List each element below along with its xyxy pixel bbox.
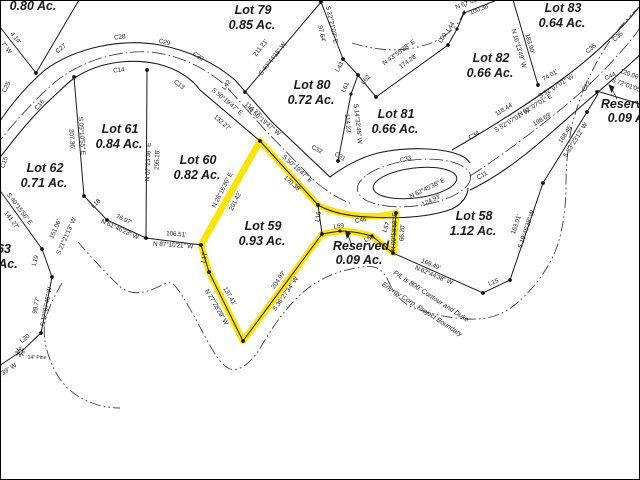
- reserved-right-name: Reserved: [601, 97, 640, 111]
- curve-ref-c36: C36: [611, 30, 625, 43]
- curve-ref-c33: C33: [399, 155, 412, 165]
- curve-ref-c46: C46: [354, 216, 367, 225]
- labels-layer: 0.80 Ac.Lot 790.85 Ac.Lot 800.72 Ac.Lot …: [0, 0, 640, 379]
- line-ref-l42: L42: [221, 78, 233, 91]
- distance: 74.01': [541, 68, 559, 83]
- line-ref-l43: L43: [334, 60, 346, 73]
- distance: 132.27': [212, 114, 232, 132]
- line-ref-l19: L19: [31, 254, 41, 266]
- bearing: N 87°10'21" W: [153, 240, 195, 251]
- plat-map-canvas: 0.80 Ac.Lot 790.85 Ac.Lot 800.72 Ac.Lot …: [0, 0, 640, 480]
- distance: 118.44': [494, 102, 514, 118]
- curve-ref-c28: C28: [114, 33, 127, 42]
- distance-partial: 4.14': [8, 31, 22, 46]
- lot-62-name: Lot 62: [27, 161, 64, 175]
- distance: 141.27': [2, 210, 20, 230]
- distance: 183.90': [523, 33, 535, 54]
- distance: 151.06': [48, 219, 63, 240]
- bearing: N 07°23'38" E: [143, 143, 152, 182]
- lot-83-acreage: 0.64 Ac.: [539, 16, 586, 30]
- line-ref-l61: L61: [340, 81, 351, 94]
- lot-58-name: Lot 58: [456, 209, 493, 223]
- distance: 198.69': [532, 112, 553, 128]
- survey-vertex-dots: [34, 0, 599, 343]
- plat-map: 0.80 Ac.Lot 790.85 Ac.Lot 800.72 Ac.Lot …: [0, 0, 640, 480]
- distance: 295.18': [154, 150, 162, 170]
- lot-83-name: Lot 83: [545, 1, 582, 15]
- lot-79-acreage: 0.85 Ac.: [229, 18, 276, 32]
- lot-59-acreage: 0.93 Ac.: [239, 234, 286, 248]
- curve-ref-c15: C15: [0, 156, 10, 170]
- lot-81-acreage: 0.66 Ac.: [372, 122, 419, 136]
- bearing: S 12°07'45" W: [38, 285, 54, 327]
- distance: 99.77': [32, 297, 42, 315]
- bearing: S 19°45'38" W: [516, 208, 537, 249]
- curve-ref-c30: C30: [191, 51, 205, 63]
- lot-60-name: Lot 60: [180, 153, 217, 167]
- lot-58-acreage: 1.12 Ac.: [450, 224, 497, 238]
- reserved-center-name: Reserved: [333, 239, 390, 253]
- distance: 97.64': [316, 25, 326, 43]
- bearing: S 05°10'55" E: [77, 117, 88, 156]
- bearing-partial: 4'39" W: [0, 361, 19, 379]
- distance: 207.36': [67, 129, 75, 150]
- bearing: N 50°19'47" W: [246, 105, 283, 138]
- distance: 106.51': [166, 230, 187, 238]
- curve-ref-c27: C27: [54, 42, 68, 55]
- curve-ref-c31: C31: [333, 151, 347, 163]
- curve-ref-c12: C12: [581, 79, 593, 93]
- lot-61-acreage: 0.84 Ac.: [96, 137, 143, 151]
- lot-62-acreage: 0.71 Ac.: [21, 176, 68, 190]
- line-ref-l44: L44: [445, 20, 457, 33]
- lot-59-name: Lot 59: [245, 219, 282, 233]
- pine-tree-icon: [15, 347, 25, 357]
- lot-63-acreage-partial: Ac.: [0, 257, 18, 271]
- lot-82-acreage: 0.66 Ac.: [467, 66, 514, 80]
- curve-ref-c35: C35: [584, 42, 598, 55]
- distance: 66.20': [399, 224, 407, 241]
- line-ref-l18: L18: [90, 197, 103, 210]
- lot-80-name: Lot 80: [294, 78, 331, 92]
- reserved-right-acreage: 0.09 Ac.: [608, 111, 640, 125]
- line-ref-l62: L62: [360, 73, 373, 86]
- line-ref-l16: L16: [314, 210, 323, 222]
- curve-ref-c32: C32: [310, 144, 324, 156]
- lot-60-acreage: 0.82 Ac.: [174, 168, 221, 182]
- distance: 211.21': [252, 38, 270, 58]
- tree-label: 14" Pine: [28, 355, 47, 361]
- curve-ref-c14: C14: [113, 66, 126, 74]
- lot-78-acreage: 0.80 Ac.: [10, 0, 57, 13]
- curve-ref-c34: C34: [468, 129, 482, 141]
- curve-ref-c13: C13: [172, 79, 186, 92]
- curve-ref-c25: C25: [1, 80, 13, 94]
- lot-81-name: Lot 81: [378, 107, 415, 121]
- lot-82-name: Lot 82: [473, 51, 510, 65]
- lot-80-acreage: 0.72 Ac.: [288, 93, 335, 107]
- curve-ref-c29: C29: [158, 38, 171, 48]
- lot-61-name: Lot 61: [102, 122, 139, 136]
- bearing-partial: 7" W: [0, 41, 14, 57]
- reserved-center-acreage: 0.09 Ac.: [336, 253, 383, 267]
- bearing: S 14°32'46" W: [352, 104, 364, 146]
- lot-79-name: Lot 79: [235, 3, 272, 17]
- lot-63-name-partial: 63: [0, 242, 11, 256]
